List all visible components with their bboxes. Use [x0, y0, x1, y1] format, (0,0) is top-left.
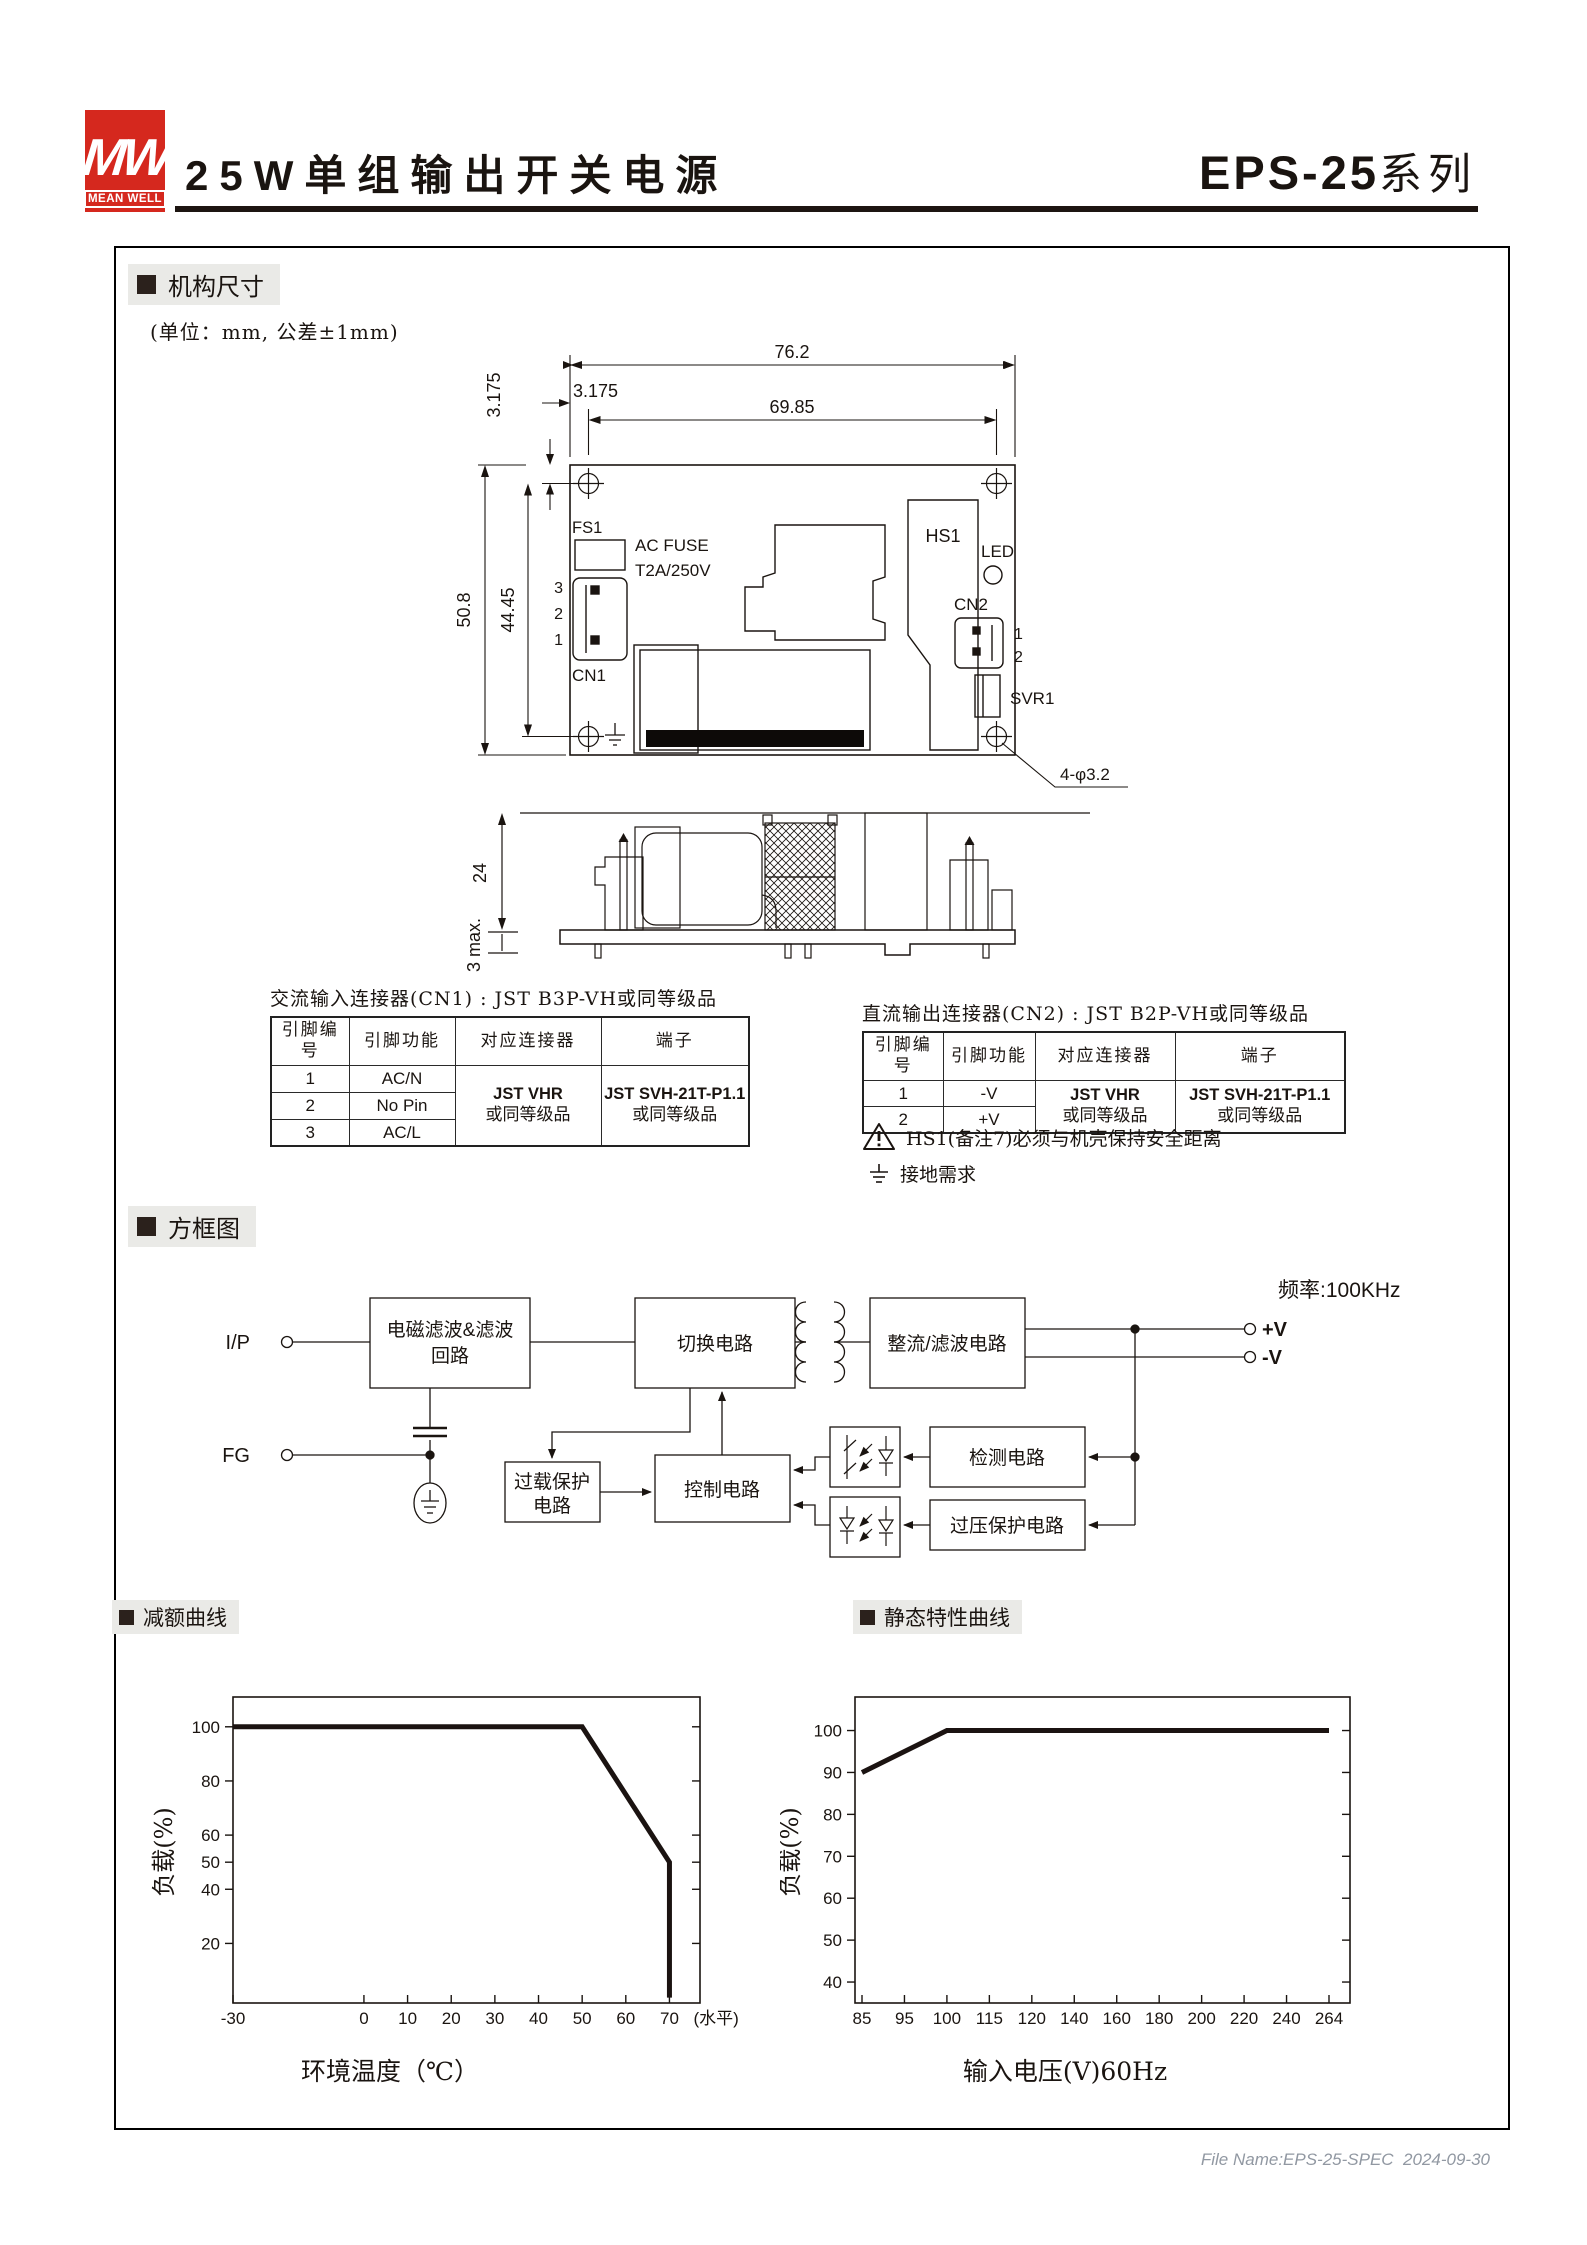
side-dim-pins: 3 max. [464, 918, 484, 972]
y-axis-title: 负载(%) [150, 1807, 178, 1897]
table-row: 1 AC/N JST VHR 或同等级品 JST SVH-21T-P1.1 或同… [271, 1065, 749, 1092]
cn1-terminal-cell: JST SVH-21T-P1.1 或同等级品 [601, 1065, 749, 1146]
y-tick-label: 20 [201, 1934, 220, 1953]
emi-filter-box [370, 1298, 530, 1388]
section-square-icon [119, 1610, 134, 1625]
section-mechanical-label: 机构尺寸 [168, 267, 264, 302]
data-curve [233, 1727, 669, 1998]
y-tick-label: 80 [201, 1772, 220, 1791]
y-tick-label: 50 [823, 1931, 842, 1950]
datasheet-page: MW MEAN WELL 25W单组输出开关电源 EPS-25系列 机构尺寸 (… [0, 0, 1587, 2245]
cn2-table: 引脚编号 引脚功能 对应连接器 端子 1 -V JST VHR 或同等级品 JS… [862, 1031, 1346, 1134]
block-diagram: I/P FG +V -V 频率:100KHz 电磁滤波&滤波 回路 切换电路 整… [150, 1270, 1430, 1580]
cn1-col-connector: 对应连接器 [455, 1017, 601, 1065]
series-suffix: 系列 [1379, 150, 1477, 200]
x-tick-label: 200 [1187, 2009, 1215, 2028]
ovp-label: 过压保护电路 [950, 1515, 1064, 1537]
plot-area [233, 1697, 700, 2003]
ground-note-text: 接地需求 [900, 1160, 976, 1187]
svr1-trimmer [975, 675, 1000, 717]
side-connector-right [950, 860, 988, 930]
ground-note: 接地需求 [868, 1160, 976, 1187]
x-tick-label: 40 [529, 2009, 548, 2028]
mounting-holes [573, 468, 1012, 752]
cn1-table-block: 交流输入连接器(CN1) : JST B3P-VH或同等级品 引脚编号 引脚功能… [270, 984, 750, 1147]
page-title: 25W单组输出开关电源 [185, 142, 728, 203]
y-tick-label: 40 [201, 1880, 220, 1899]
dim-inner-height: 44.45 [498, 587, 518, 632]
optocoupler-symbol [844, 1435, 893, 1479]
cn1-col-terminal: 端子 [601, 1017, 749, 1065]
section-static: 静态特性曲线 [853, 1600, 1022, 1634]
fuse-fs1 [575, 540, 625, 570]
dim-inset-left: 3.175 [573, 381, 618, 401]
series-code: EPS-25 [1199, 146, 1379, 199]
section-block-label: 方框图 [168, 1209, 240, 1244]
x-tick-label: 0 [359, 2009, 368, 2028]
fuse-label-2: T2A/250V [635, 561, 711, 580]
y-tick-label: 40 [823, 1973, 842, 1992]
pcb-side-view-drawing: 24 3 max. [430, 795, 1130, 980]
cn1-col-func: 引脚功能 [349, 1017, 455, 1065]
section-square-icon [137, 275, 156, 294]
x-tick-label: 50 [573, 2009, 592, 2028]
cn2-col-terminal: 端子 [1175, 1032, 1345, 1080]
vplus-label: +V [1262, 1319, 1288, 1341]
optocoupler-box [830, 1497, 900, 1557]
data-curve [862, 1731, 1329, 1773]
input-terminal-label: I/P [226, 1332, 250, 1354]
x-tick-label: 240 [1272, 2009, 1300, 2028]
x-tick-label: 115 [976, 2009, 1003, 2028]
x-axis-title: 环境温度（℃） [301, 2057, 479, 2086]
cn2-connector [955, 618, 1003, 668]
section-mechanical: 机构尺寸 [128, 264, 280, 305]
y-axis-title: 负载(%) [780, 1807, 804, 1897]
side-block [865, 813, 927, 930]
side-capacitor [642, 833, 762, 925]
svr1-label: SVR1 [1010, 689, 1054, 708]
fuse-label-1: AC FUSE [635, 536, 709, 555]
x-tick-label: 20 [442, 2009, 461, 2028]
dim-inset-top: 3.175 [484, 372, 504, 417]
x-tick-label: 30 [485, 2009, 504, 2028]
x-tick-label: 85 [853, 2009, 872, 2028]
cn2-col-connector: 对应连接器 [1035, 1032, 1175, 1080]
cn2-label: CN2 [954, 595, 988, 614]
section-derating: 减额曲线 [112, 1600, 239, 1634]
dim-width: 76.2 [774, 342, 809, 362]
x-tick-label: 220 [1230, 2009, 1258, 2028]
y-tick-label: 100 [192, 1718, 220, 1737]
cn2-col-pin: 引脚编号 [863, 1032, 943, 1080]
y-tick-label: 50 [201, 1853, 220, 1872]
fs1-label: FS1 [572, 519, 602, 537]
optocoupler-symbol [840, 1506, 893, 1546]
x-tick-label: 60 [616, 2009, 635, 2028]
switching-label: 切换电路 [677, 1333, 753, 1355]
emi-label-2: 回路 [431, 1345, 469, 1367]
section-static-label: 静态特性曲线 [884, 1602, 1010, 1632]
series-name: EPS-25系列 [1199, 140, 1477, 202]
dim-inner-width: 69.85 [769, 397, 814, 417]
led-indicator [984, 566, 1002, 584]
y-tick-label: 100 [814, 1722, 842, 1741]
meanwell-logo: MW MEAN WELL [85, 110, 165, 212]
cn1-pin1: 1 [554, 632, 563, 649]
logo-brand-text: MEAN WELL [84, 190, 166, 208]
hs1-warning: HS1(备注7)必须与机壳保持安全距离 [862, 1122, 1222, 1152]
optocoupler-box [830, 1427, 900, 1487]
frequency-label: 频率:100KHz [1278, 1279, 1401, 1302]
detect-label: 检测电路 [969, 1447, 1045, 1469]
section-block-diagram: 方框图 [128, 1206, 256, 1247]
cn2-pin1: 1 [1014, 626, 1023, 643]
overload-label-2: 电路 [533, 1495, 571, 1517]
x-tick-label: 10 [398, 2009, 417, 2028]
logo-mw-icon: MW [80, 128, 171, 188]
unit-note: (单位：mm, 公差±1mm) [150, 316, 399, 345]
x-tick-label: 120 [1018, 2009, 1046, 2028]
cn1-table: 引脚编号 引脚功能 对应连接器 端子 1 AC/N JST VHR 或同等级品 … [270, 1016, 750, 1147]
header-divider [175, 206, 1478, 212]
x-tick-label: 180 [1145, 2009, 1173, 2028]
ground-icon [868, 1162, 890, 1186]
plot-area [855, 1697, 1350, 2003]
heatsink-shape [745, 525, 885, 640]
side-dim-height: 24 [470, 863, 490, 883]
side-connector-left [595, 857, 643, 930]
x-tick-label: 264 [1315, 2009, 1343, 2028]
x-tick-label: 95 [895, 2009, 914, 2028]
cn1-connector-cell: JST VHR 或同等级品 [455, 1065, 601, 1146]
pcb-outline [570, 465, 1015, 755]
cn1-connector [573, 578, 627, 660]
section-derating-label: 减额曲线 [143, 1602, 227, 1632]
x-tick-label: 140 [1060, 2009, 1088, 2028]
derating-chart: 2040506080100-30010203040506070(水平)环境温度（… [150, 1680, 750, 2110]
x-tick-label: 160 [1103, 2009, 1131, 2028]
warning-icon [862, 1122, 896, 1152]
x-tick-label: 100 [933, 2009, 961, 2028]
cn2-table-title: 直流输出连接器(CN2) : JST B2P-VH或同等级品 [862, 999, 1346, 1026]
table-row: 1 -V JST VHR 或同等级品 JST SVH-21T-P1.1 或同等级… [863, 1080, 1345, 1106]
cn1-col-pin: 引脚编号 [271, 1017, 349, 1065]
y-tick-label: 90 [823, 1763, 842, 1782]
y-tick-label: 60 [823, 1889, 842, 1908]
pcb-top-view-drawing: 76.2 69.85 3.175 3.175 50.8 44.45 FS1 AC… [430, 335, 1130, 800]
pcb-ground-icon [605, 723, 625, 745]
led-label: LED [981, 542, 1014, 561]
y-tick-label: 70 [823, 1847, 842, 1866]
rectifier-label: 整流/滤波电路 [887, 1333, 1006, 1355]
hs1-label: HS1 [925, 526, 960, 546]
y-tick-label: 60 [201, 1826, 220, 1845]
overload-label-1: 过载保护 [514, 1471, 590, 1493]
cn1-pin3: 3 [554, 580, 563, 597]
cn1-pin2: 2 [554, 606, 563, 623]
emi-label-1: 电磁滤波&滤波 [387, 1319, 514, 1341]
x-tick-label: 70 [660, 2009, 679, 2028]
footer-filename: File Name:EPS-25-SPEC 2024-09-30 [1201, 2150, 1490, 2170]
section-square-icon [137, 1217, 156, 1236]
x-tick-label: -30 [221, 2009, 246, 2028]
section-square-icon [860, 1610, 875, 1625]
static-characteristic-chart: 4050607080901008595100115120140160180200… [780, 1680, 1400, 2110]
cn2-pin2: 2 [1014, 649, 1023, 666]
cn1-label: CN1 [572, 666, 606, 685]
earth-ground-icon [414, 1483, 446, 1523]
hole-note: 4-φ3.2 [1060, 765, 1110, 784]
cn1-table-title: 交流输入连接器(CN1) : JST B3P-VH或同等级品 [270, 984, 750, 1011]
control-label: 控制电路 [684, 1479, 760, 1501]
cn2-col-func: 引脚功能 [943, 1032, 1035, 1080]
hs1-warning-text: HS1(备注7)必须与机壳保持安全距离 [906, 1124, 1222, 1151]
y-tick-label: 80 [823, 1805, 842, 1824]
x-suffix-label: (水平) [693, 2009, 738, 2028]
x-axis-title: 输入电压(V)60Hz [963, 2057, 1167, 2086]
dim-height: 50.8 [454, 592, 474, 627]
fg-terminal-label: FG [222, 1445, 250, 1467]
cn2-table-block: 直流输出连接器(CN2) : JST B2P-VH或同等级品 引脚编号 引脚功能… [862, 999, 1346, 1134]
vminus-label: -V [1262, 1347, 1283, 1369]
